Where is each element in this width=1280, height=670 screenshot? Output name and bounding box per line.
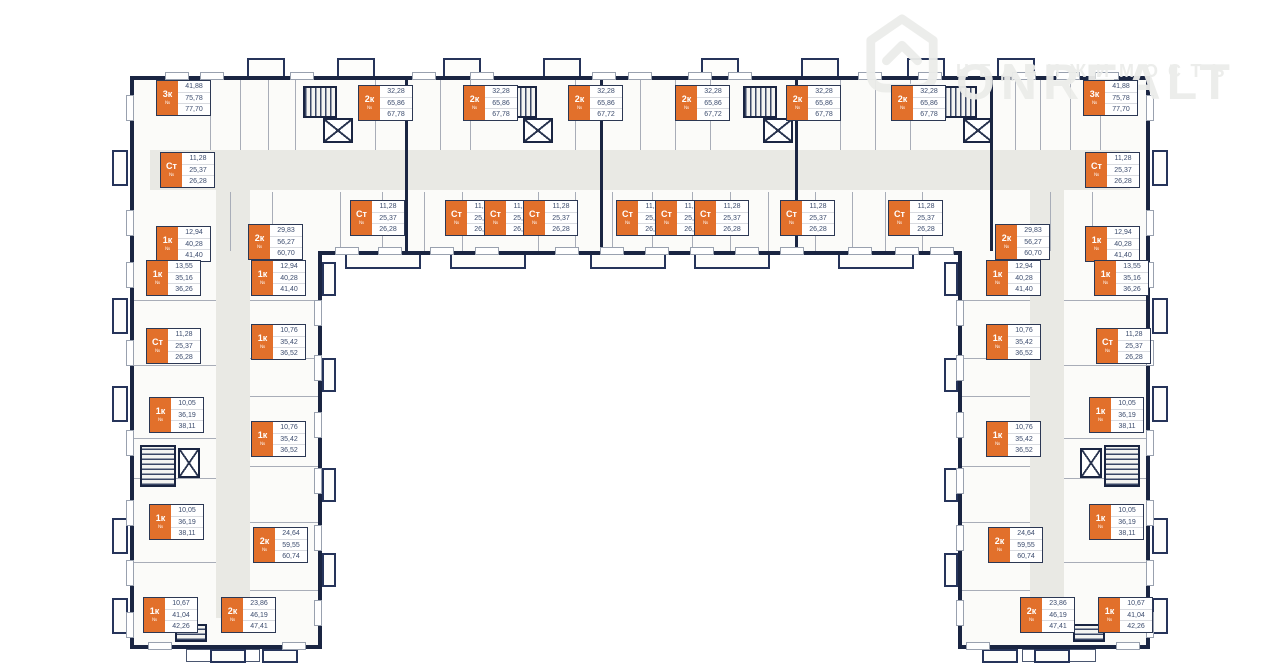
apartment-type: Ст [661, 210, 672, 219]
area-value: 65,86 [485, 98, 517, 110]
area-value: 11,28 [1107, 153, 1139, 165]
apartment-type-badge: 1к № [150, 398, 171, 432]
apartment-type-badge: Ст № [1097, 329, 1118, 363]
apartment-type: 2к [228, 607, 238, 616]
apartment-type-badge: 3к № [157, 81, 178, 115]
area-value: 25,37 [372, 213, 404, 225]
apartment-unit-number: № [995, 442, 1000, 447]
apartment-label[interactable]: 3к № 41,8875,7877,70 [156, 80, 211, 116]
apartment-areas: 11,2825,3726,28 [372, 201, 404, 235]
area-value: 67,78 [380, 109, 412, 120]
partition-wall [852, 192, 853, 251]
apartment-type-badge: 1к № [987, 325, 1008, 359]
apartment-type-badge: 2к № [787, 86, 808, 120]
area-value: 46,19 [1042, 610, 1074, 622]
apartment-type: Ст [152, 338, 163, 347]
apartment-label[interactable]: Ст № 11,2825,3726,28 [694, 200, 749, 236]
apartment-type-badge: 2к № [989, 528, 1010, 562]
elevator [178, 448, 200, 478]
partition-wall [134, 562, 216, 563]
partition-wall [640, 80, 641, 150]
area-value: 32,28 [697, 86, 729, 98]
apartment-type-badge: Ст № [524, 201, 545, 235]
area-value: 10,76 [273, 325, 305, 337]
apartment-label[interactable]: 1к № 10,0536,1938,11 [149, 504, 204, 540]
apartment-unit-number: № [359, 221, 364, 226]
area-value: 24,64 [1010, 528, 1042, 540]
apartment-type: 2к [682, 95, 692, 104]
window [126, 210, 134, 236]
apartment-areas: 12,9440,2841,40 [273, 261, 305, 295]
apartment-unit-number: № [165, 247, 170, 252]
window [475, 247, 499, 255]
apartment-type-badge: 1к № [1090, 505, 1111, 539]
apartment-unit-number: № [155, 349, 160, 354]
apartment-unit-number: № [152, 618, 157, 623]
area-value: 11,28 [372, 201, 404, 213]
apartment-type-badge: 1к № [252, 422, 273, 456]
apartment-type: 1к [156, 407, 166, 416]
apartment-label[interactable]: 1к № 10,7635,4236,52 [251, 324, 306, 360]
apartment-unit-number: № [703, 221, 708, 226]
area-value: 59,55 [275, 540, 307, 552]
apartment-label[interactable]: 1к № 10,7635,4236,52 [986, 324, 1041, 360]
area-value: 75,78 [178, 93, 210, 105]
apartment-unit-number: № [260, 442, 265, 447]
apartment-type-badge: 1к № [252, 261, 273, 295]
apartment-unit-number: № [260, 345, 265, 350]
partition-wall [440, 80, 441, 150]
area-value: 13,55 [1116, 261, 1148, 273]
apartment-label[interactable]: 1к № 10,7635,4236,52 [251, 421, 306, 457]
apartment-label[interactable]: Ст № 11,2825,3726,28 [1085, 152, 1140, 188]
window [1095, 72, 1119, 80]
elevator [963, 118, 993, 143]
balcony [322, 553, 336, 587]
area-value: 12,94 [178, 227, 210, 239]
apartment-type: 2к [365, 95, 375, 104]
area-value: 67,78 [808, 109, 840, 120]
apartment-unit-number: № [367, 106, 372, 111]
window [314, 468, 322, 494]
apartment-unit-number: № [1103, 281, 1108, 286]
balcony [590, 253, 666, 269]
area-value: 32,28 [380, 86, 412, 98]
area-value: 36,19 [1111, 517, 1143, 529]
window [430, 247, 454, 255]
apartment-type: Ст [166, 162, 177, 171]
elevator [323, 118, 353, 143]
apartment-unit-number: № [897, 221, 902, 226]
area-value: 26,28 [802, 224, 834, 235]
apartment-type-badge: 1к № [1095, 261, 1116, 295]
partition-wall [268, 80, 269, 150]
apartment-areas: 12,9440,2841,40 [1008, 261, 1040, 295]
area-value: 60,70 [1017, 248, 1049, 259]
area-value: 35,42 [273, 434, 305, 446]
balcony [210, 649, 246, 663]
area-value: 35,16 [168, 273, 200, 285]
apartment-unit-number: № [1094, 247, 1099, 252]
area-value: 40,28 [273, 273, 305, 285]
area-value: 36,52 [1008, 348, 1040, 359]
balcony [1152, 298, 1168, 334]
area-value: 65,86 [697, 98, 729, 110]
apartment-unit-number: № [230, 618, 235, 623]
apartment-label[interactable]: 1к № 10,0536,1938,11 [1089, 504, 1144, 540]
elevator [1080, 448, 1102, 478]
area-value: 10,05 [171, 398, 203, 410]
area-value: 24,64 [275, 528, 307, 540]
apartment-type: Ст [1091, 162, 1102, 171]
area-value: 46,19 [243, 610, 275, 622]
apartment-label[interactable]: 3к № 41,8875,7877,70 [1083, 80, 1138, 116]
area-value: 36,19 [1111, 410, 1143, 422]
window [1116, 642, 1140, 650]
area-value: 65,86 [913, 98, 945, 110]
window [378, 247, 402, 255]
apartment-type-badge: 2к № [996, 225, 1017, 259]
apartment-type-badge: Ст № [351, 201, 372, 235]
apartment-unit-number: № [1098, 525, 1103, 530]
balcony [801, 58, 839, 78]
apartment-label[interactable]: 2к № 32,2865,8667,72 [568, 85, 623, 121]
area-value: 10,67 [165, 598, 197, 610]
apartment-unit-number: № [155, 281, 160, 286]
window [780, 247, 804, 255]
area-value: 67,78 [485, 109, 517, 120]
window [956, 468, 964, 494]
apartment-label[interactable]: 2к № 23,8646,1947,41 [1020, 597, 1075, 633]
apartment-type: Ст [356, 210, 367, 219]
apartment-areas: 10,0536,1938,11 [171, 398, 203, 432]
apartment-areas: 41,8875,7877,70 [1105, 81, 1137, 115]
partition-wall [875, 80, 876, 150]
apartment-label[interactable]: 1к № 10,7635,4236,52 [986, 421, 1041, 457]
area-value: 40,28 [1107, 239, 1139, 251]
area-value: 12,94 [273, 261, 305, 273]
apartment-areas: 10,0536,1938,11 [1111, 505, 1143, 539]
partition-wall [230, 192, 231, 251]
apartment-type: Ст [894, 210, 905, 219]
area-value: 36,52 [1008, 445, 1040, 456]
apartment-type-badge: 1к № [1086, 227, 1107, 261]
apartment-areas: 32,2865,8667,72 [590, 86, 622, 120]
area-value: 10,05 [1111, 398, 1143, 410]
area-value: 41,40 [1008, 284, 1040, 295]
apartment-unit-number: № [795, 106, 800, 111]
apartment-type: 2к [995, 537, 1005, 546]
area-value: 25,37 [168, 341, 200, 353]
area-value: 25,37 [802, 213, 834, 225]
apartment-label[interactable]: 2к № 29,8356,2760,70 [248, 224, 303, 260]
apartment-type: 2к [898, 95, 908, 104]
balcony [112, 386, 128, 422]
apartment-areas: 10,7635,4236,52 [1008, 422, 1040, 456]
area-value: 40,28 [178, 239, 210, 251]
area-value: 40,28 [1008, 273, 1040, 285]
window [956, 525, 964, 551]
window [895, 247, 919, 255]
apartment-areas: 11,2825,3726,28 [1118, 329, 1150, 363]
area-value: 25,37 [1107, 165, 1139, 177]
apartment-label[interactable]: 2к № 32,2865,8667,78 [786, 85, 841, 121]
apartment-label[interactable]: Ст № 11,2825,3726,28 [523, 200, 578, 236]
apartment-type: 1к [1105, 607, 1115, 616]
area-value: 26,28 [168, 352, 200, 363]
area-value: 56,27 [270, 237, 302, 249]
window [600, 247, 624, 255]
apartment-areas: 32,2865,8667,78 [485, 86, 517, 120]
apartment-areas: 23,8646,1947,41 [243, 598, 275, 632]
apartment-areas: 24,6459,5560,74 [275, 528, 307, 562]
apartment-type-badge: 2к № [464, 86, 485, 120]
balcony [262, 649, 298, 663]
area-value: 41,04 [165, 610, 197, 622]
apartment-unit-number: № [1098, 418, 1103, 423]
partition-wall [240, 80, 241, 150]
apartment-type-badge: 1к № [987, 422, 1008, 456]
partition-wall [1050, 192, 1051, 251]
apartment-label[interactable]: Ст № 11,2825,3726,28 [1096, 328, 1151, 364]
apartment-type-badge: Ст № [147, 329, 168, 363]
apartment-label[interactable]: 1к № 10,0536,1938,11 [1089, 397, 1144, 433]
apartment-unit-number: № [472, 106, 477, 111]
window [688, 72, 712, 80]
apartment-label[interactable]: 2к № 23,8646,1947,41 [221, 597, 276, 633]
area-value: 35,16 [1116, 273, 1148, 285]
window [956, 300, 964, 326]
apartment-type-badge: Ст № [656, 201, 677, 235]
apartment-type-badge: Ст № [161, 153, 182, 187]
balcony [322, 358, 336, 392]
apartment-areas: 11,2825,3726,28 [910, 201, 942, 235]
area-value: 11,28 [716, 201, 748, 213]
apartment-type-badge: 3к № [1084, 81, 1105, 115]
balcony [337, 58, 375, 78]
apartment-label[interactable]: 2к № 32,2865,8667,78 [891, 85, 946, 121]
area-value: 32,28 [485, 86, 517, 98]
partition-wall [134, 300, 216, 301]
apartment-areas: 10,6741,0442,26 [1120, 598, 1152, 632]
window [470, 72, 494, 80]
apartment-type: 2к [255, 234, 265, 243]
apartment-type: 1к [258, 270, 268, 279]
balcony [1034, 649, 1070, 663]
apartment-label[interactable]: 1к № 12,9440,2841,40 [1085, 226, 1140, 262]
apartment-label[interactable]: 1к № 12,9440,2841,40 [986, 260, 1041, 296]
window [314, 355, 322, 381]
area-value: 25,37 [545, 213, 577, 225]
window [1146, 500, 1154, 526]
balcony [838, 253, 914, 269]
window [314, 525, 322, 551]
apartment-areas: 11,2825,3726,28 [168, 329, 200, 363]
apartment-areas: 10,7635,4236,52 [1008, 325, 1040, 359]
window [592, 72, 616, 80]
apartment-unit-number: № [158, 525, 163, 530]
area-value: 35,42 [1008, 434, 1040, 446]
area-value: 41,40 [273, 284, 305, 295]
apartment-type: 3к [1090, 90, 1100, 99]
window [555, 247, 579, 255]
apartment-areas: 10,6741,0442,26 [165, 598, 197, 632]
apartment-type-badge: Ст № [889, 201, 910, 235]
apartment-type: 1к [1092, 236, 1102, 245]
apartment-label[interactable]: 1к № 13,5535,1636,26 [1094, 260, 1149, 296]
window [126, 95, 134, 121]
partition-wall [250, 300, 318, 301]
partition-wall [295, 80, 296, 150]
area-value: 41,04 [1120, 610, 1152, 622]
window [735, 247, 759, 255]
window [690, 247, 714, 255]
apartment-label[interactable]: 2к № 24,6459,5560,74 [988, 527, 1043, 563]
area-value: 11,28 [545, 201, 577, 213]
apartment-unit-number: № [260, 281, 265, 286]
apartment-type-badge: Ст № [617, 201, 638, 235]
apartment-label[interactable]: 1к № 12,9440,2841,40 [156, 226, 211, 262]
partition-wall [962, 396, 1030, 397]
area-value: 65,86 [808, 98, 840, 110]
apartment-type-badge: Ст № [695, 201, 716, 235]
partition-wall [962, 466, 1030, 467]
partition-wall [134, 438, 216, 439]
partition-wall [250, 466, 318, 467]
apartment-unit-number: № [997, 548, 1002, 553]
area-value: 60,74 [1010, 551, 1042, 562]
area-value: 25,37 [910, 213, 942, 225]
apartment-areas: 12,9440,2841,40 [1107, 227, 1139, 261]
area-value: 11,28 [168, 329, 200, 341]
window [412, 72, 436, 80]
area-value: 65,86 [590, 98, 622, 110]
apartment-unit-number: № [684, 106, 689, 111]
apartment-label[interactable]: 2к № 32,2865,8667,72 [675, 85, 730, 121]
area-value: 11,28 [182, 153, 214, 165]
window [1146, 430, 1154, 456]
apartment-areas: 10,7635,4236,52 [273, 325, 305, 359]
apartment-unit-number: № [1029, 618, 1034, 623]
apartment-areas: 32,2865,8667,78 [913, 86, 945, 120]
apartment-type: 2к [1027, 607, 1037, 616]
stairwell [1104, 445, 1140, 487]
window [126, 430, 134, 456]
apartment-label[interactable]: 2к № 32,2865,8667,78 [358, 85, 413, 121]
apartment-label[interactable]: 1к № 12,9440,2841,40 [251, 260, 306, 296]
window [966, 642, 990, 650]
area-value: 60,70 [270, 248, 302, 259]
balcony [1152, 518, 1168, 554]
area-value: 10,05 [1111, 505, 1143, 517]
apartment-label[interactable]: 1к № 10,6741,0442,26 [143, 597, 198, 633]
apartment-type: 1к [993, 334, 1003, 343]
apartment-label[interactable]: 2к № 24,6459,5560,74 [253, 527, 308, 563]
stairwell [943, 86, 977, 118]
area-value: 10,76 [1008, 325, 1040, 337]
apartment-areas: 11,2825,3726,28 [1107, 153, 1139, 187]
apartment-label[interactable]: Ст № 11,2825,3726,28 [160, 152, 215, 188]
apartment-type: Ст [451, 210, 462, 219]
apartment-label[interactable]: 1к № 10,0536,1938,11 [149, 397, 204, 433]
area-value: 26,28 [1107, 176, 1139, 187]
apartment-type: 1к [258, 334, 268, 343]
area-value: 75,78 [1105, 93, 1137, 105]
area-value: 10,67 [1120, 598, 1152, 610]
window [148, 642, 172, 650]
area-value: 41,88 [1105, 81, 1137, 93]
apartment-unit-number: № [493, 221, 498, 226]
window [645, 247, 669, 255]
apartment-label[interactable]: Ст № 11,2825,3726,28 [888, 200, 943, 236]
apartment-label[interactable]: 2к № 32,2865,8667,78 [463, 85, 518, 121]
apartment-areas: 23,8646,1947,41 [1042, 598, 1074, 632]
window [126, 500, 134, 526]
apartment-type: 1к [1101, 270, 1111, 279]
area-value: 12,94 [1008, 261, 1040, 273]
apartment-areas: 12,9440,2841,40 [178, 227, 210, 261]
area-value: 32,28 [913, 86, 945, 98]
area-value: 10,76 [1008, 422, 1040, 434]
partition-wall [250, 522, 318, 523]
apartment-type: 2к [260, 537, 270, 546]
window [126, 340, 134, 366]
apartment-unit-number: № [900, 106, 905, 111]
apartment-type: 1к [150, 607, 160, 616]
partition-wall [962, 522, 1030, 523]
window [165, 72, 189, 80]
window [282, 642, 306, 650]
partition-wall [768, 192, 769, 251]
apartment-label[interactable]: 2к № 29,8356,2760,70 [995, 224, 1050, 260]
apartment-type: 1к [1096, 407, 1106, 416]
area-value: 65,86 [380, 98, 412, 110]
apartment-label[interactable]: Ст № 11,2825,3726,28 [780, 200, 835, 236]
area-value: 26,28 [182, 176, 214, 187]
apartment-type: 2к [1002, 234, 1012, 243]
apartment-label[interactable]: 1к № 10,6741,0442,26 [1098, 597, 1153, 633]
apartment-unit-number: № [1004, 245, 1009, 250]
area-value: 47,41 [243, 621, 275, 632]
apartment-type-badge: Ст № [485, 201, 506, 235]
area-value: 26,28 [1118, 352, 1150, 363]
apartment-areas: 11,2825,3726,28 [182, 153, 214, 187]
window [200, 72, 224, 80]
apartment-unit-number: № [169, 173, 174, 178]
apartment-label[interactable]: 1к № 13,5535,1636,26 [146, 260, 201, 296]
elevator [763, 118, 793, 143]
apartment-type: 1к [163, 236, 173, 245]
apartment-type-badge: 2к № [359, 86, 380, 120]
apartment-type: 1к [993, 270, 1003, 279]
partition-wall [1040, 80, 1041, 150]
window [1012, 72, 1036, 80]
apartment-label[interactable]: Ст № 11,2825,3726,28 [350, 200, 405, 236]
apartment-areas: 29,8356,2760,70 [270, 225, 302, 259]
balcony [543, 58, 581, 78]
partition-wall [250, 590, 318, 591]
balcony [944, 262, 958, 296]
area-value: 26,28 [372, 224, 404, 235]
area-value: 26,28 [716, 224, 748, 235]
corridor [216, 188, 250, 618]
apartment-label[interactable]: Ст № 11,2825,3726,28 [146, 328, 201, 364]
apartment-type-badge: 1к № [1090, 398, 1111, 432]
area-value: 11,28 [802, 201, 834, 213]
window [956, 412, 964, 438]
apartment-type-badge: Ст № [781, 201, 802, 235]
stairwell [303, 86, 337, 118]
